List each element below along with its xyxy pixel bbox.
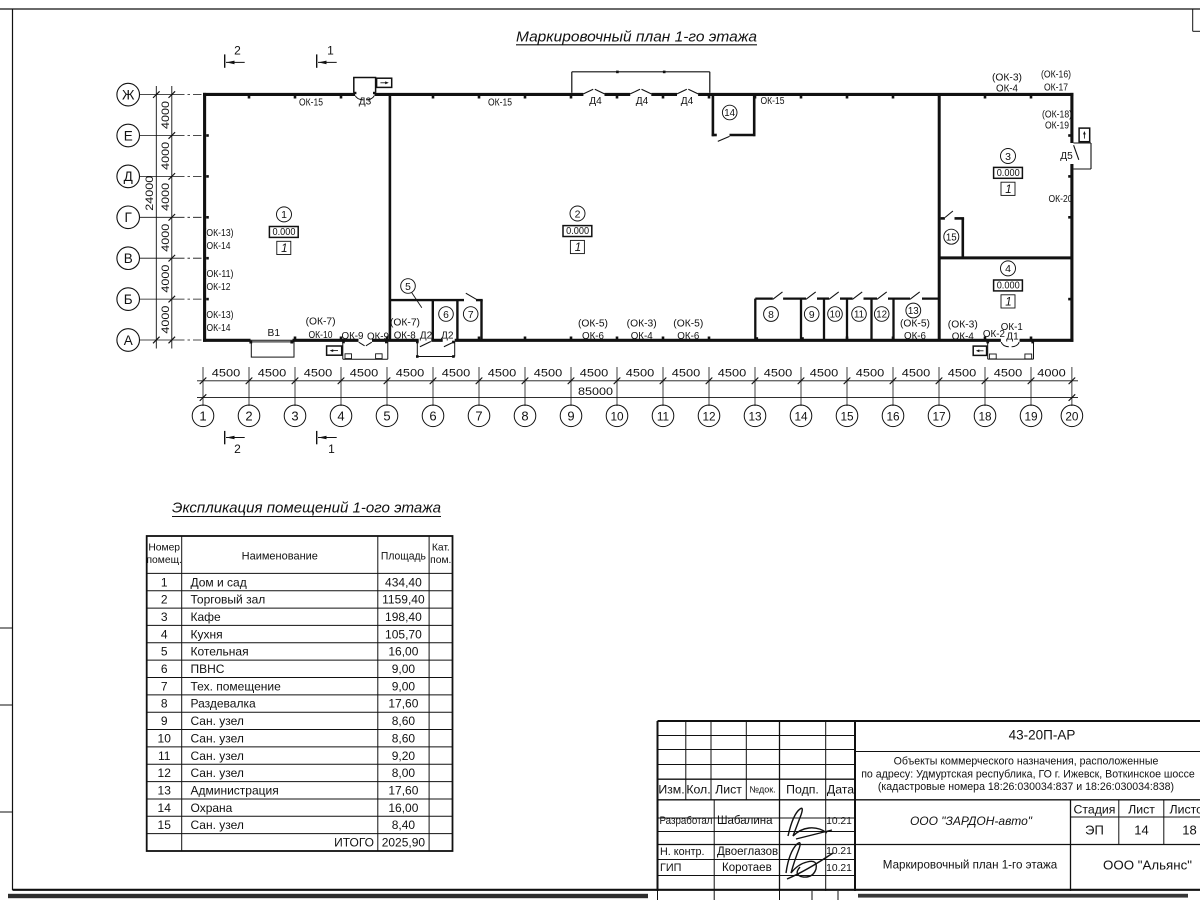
- svg-text:Листов: Листов: [1170, 802, 1200, 816]
- svg-text:3: 3: [161, 610, 168, 624]
- svg-text:4500: 4500: [856, 367, 885, 379]
- svg-text:ОК-6: ОК-6: [582, 331, 605, 342]
- svg-text:ОК-20: ОК-20: [1049, 194, 1073, 205]
- svg-text:11: 11: [657, 409, 669, 423]
- svg-text:4500: 4500: [258, 367, 287, 379]
- svg-text:(ОК-3): (ОК-3): [948, 320, 978, 331]
- svg-text:8,60: 8,60: [392, 714, 416, 728]
- svg-text:Подп.: Подп.: [786, 783, 819, 797]
- svg-text:9,00: 9,00: [392, 662, 416, 676]
- svg-text:ОК-14: ОК-14: [207, 323, 231, 334]
- svg-text:10: 10: [610, 409, 624, 423]
- svg-text:9: 9: [161, 714, 168, 728]
- svg-text:ОК-19: ОК-19: [1045, 121, 1069, 132]
- svg-text:14: 14: [794, 409, 808, 423]
- svg-text:(ОК-13): (ОК-13): [204, 310, 234, 321]
- svg-text:Сан. узел: Сан. узел: [191, 714, 244, 728]
- svg-text:Лист: Лист: [1128, 802, 1155, 816]
- svg-text:14: 14: [158, 801, 172, 815]
- svg-text:4000: 4000: [160, 101, 172, 129]
- svg-text:Д2: Д2: [420, 331, 433, 342]
- svg-text:8,00: 8,00: [392, 766, 416, 780]
- svg-text:(ОК-11): (ОК-11): [204, 269, 234, 280]
- svg-text:ПВНС: ПВНС: [191, 662, 225, 676]
- svg-text:ОК-8: ОК-8: [394, 331, 417, 342]
- svg-text:(ОК-5): (ОК-5): [578, 319, 608, 330]
- svg-text:15: 15: [946, 232, 957, 243]
- svg-text:(ОК-13): (ОК-13): [204, 228, 234, 239]
- svg-text:19: 19: [1024, 409, 1037, 423]
- svg-text:4000: 4000: [1037, 367, 1066, 379]
- svg-text:198,40: 198,40: [385, 610, 422, 624]
- svg-text:17,60: 17,60: [388, 784, 418, 798]
- svg-text:Раздевалка: Раздевалка: [191, 697, 256, 711]
- svg-text:ЭП: ЭП: [1085, 823, 1104, 838]
- svg-text:Наименование: Наименование: [242, 551, 318, 563]
- svg-text:2: 2: [161, 593, 168, 607]
- svg-text:Объекты коммерческого назначен: Объекты коммерческого назначения, распол…: [894, 756, 1159, 768]
- svg-text:4500: 4500: [304, 367, 333, 379]
- svg-text:ООО "ЗАРДОН-авто": ООО "ЗАРДОН-авто": [910, 814, 1033, 828]
- svg-text:(ОК-18): (ОК-18): [1042, 110, 1072, 121]
- svg-text:Торговый зал: Торговый зал: [191, 593, 266, 607]
- svg-text:12: 12: [158, 766, 172, 780]
- svg-text:13: 13: [748, 409, 762, 423]
- svg-text:Д4: Д4: [681, 96, 694, 107]
- svg-text:2025,90: 2025,90: [382, 836, 426, 850]
- svg-text:10.21: 10.21: [826, 863, 852, 874]
- svg-text:Номер: Номер: [148, 543, 180, 554]
- svg-text:Двоеглазов: Двоеглазов: [717, 846, 778, 858]
- svg-text:2: 2: [234, 44, 241, 58]
- svg-text:8,60: 8,60: [392, 731, 416, 745]
- svg-text:3: 3: [1005, 151, 1011, 163]
- svg-text:(ОК-3): (ОК-3): [627, 319, 657, 330]
- svg-text:4500: 4500: [580, 367, 609, 379]
- svg-text:(кадастровые номера 18:26:0300: (кадастровые номера 18:26:030034:837 и 1…: [878, 781, 1174, 793]
- svg-text:9,00: 9,00: [392, 679, 416, 693]
- svg-text:4: 4: [1005, 263, 1011, 275]
- svg-text:4000: 4000: [160, 265, 172, 293]
- svg-text:7: 7: [475, 408, 482, 423]
- svg-text:Кафе: Кафе: [191, 610, 222, 624]
- svg-text:Тех. помещение: Тех. помещение: [191, 679, 282, 693]
- svg-text:4500: 4500: [718, 367, 747, 379]
- svg-text:4500: 4500: [442, 367, 471, 379]
- svg-text:ОК-10: ОК-10: [309, 330, 333, 341]
- svg-text:Е: Е: [124, 128, 133, 143]
- svg-text:85000: 85000: [578, 386, 613, 398]
- svg-text:0.000: 0.000: [997, 281, 1021, 292]
- svg-text:18: 18: [1182, 823, 1196, 838]
- svg-text:4500: 4500: [948, 367, 977, 379]
- svg-text:(ОК-3): (ОК-3): [992, 73, 1022, 84]
- svg-text:0.000: 0.000: [997, 168, 1021, 179]
- svg-text:ОК-9: ОК-9: [367, 332, 389, 343]
- svg-text:10.21: 10.21: [826, 816, 852, 827]
- svg-text:434,40: 434,40: [385, 575, 422, 589]
- svg-text:1: 1: [281, 243, 287, 255]
- svg-text:12: 12: [702, 409, 715, 423]
- svg-text:4500: 4500: [764, 367, 793, 379]
- svg-text:ОК-14: ОК-14: [207, 241, 231, 252]
- svg-text:4500: 4500: [672, 367, 701, 379]
- svg-text:2: 2: [575, 208, 581, 220]
- svg-text:4500: 4500: [212, 367, 241, 379]
- svg-text:1: 1: [161, 575, 168, 589]
- svg-text:1: 1: [575, 242, 581, 254]
- svg-text:6: 6: [443, 310, 449, 321]
- svg-text:ОК-15: ОК-15: [299, 98, 323, 109]
- svg-text:2: 2: [234, 442, 241, 456]
- svg-text:Д5: Д5: [1060, 151, 1073, 162]
- svg-text:24000: 24000: [144, 176, 156, 211]
- svg-text:11: 11: [158, 749, 171, 763]
- svg-text:8,40: 8,40: [392, 818, 416, 832]
- svg-text:Д4: Д4: [636, 96, 649, 107]
- svg-text:Маркировочный план 1-го этажа: Маркировочный план 1-го этажа: [883, 859, 1058, 872]
- svg-text:4: 4: [161, 627, 168, 641]
- svg-text:5: 5: [161, 645, 168, 659]
- svg-text:ОК-4: ОК-4: [996, 84, 1019, 95]
- svg-text:по адресу: Удмуртская республи: по адресу: Удмуртская республика, ГО г. …: [861, 768, 1195, 780]
- svg-text:14: 14: [724, 108, 735, 119]
- svg-text:ИТОГО: ИТОГО: [334, 836, 374, 850]
- svg-text:Охрана: Охрана: [191, 801, 233, 815]
- svg-text:(ОК-7): (ОК-7): [306, 317, 336, 328]
- svg-text:1159,40: 1159,40: [382, 593, 425, 607]
- svg-text:7: 7: [161, 679, 168, 693]
- svg-text:11: 11: [854, 310, 864, 321]
- svg-text:Дата: Дата: [827, 783, 854, 797]
- svg-text:Д3: Д3: [359, 97, 372, 108]
- svg-text:Ж: Ж: [122, 87, 135, 102]
- svg-text:ОК-9: ОК-9: [342, 331, 364, 342]
- svg-text:2: 2: [245, 408, 252, 423]
- svg-text:(ОК-7): (ОК-7): [390, 318, 420, 329]
- svg-text:(ОК-5): (ОК-5): [673, 319, 703, 330]
- svg-text:7: 7: [468, 310, 474, 321]
- svg-text:9,20: 9,20: [392, 749, 416, 763]
- svg-text:4500: 4500: [902, 367, 931, 379]
- svg-text:Дом и сад: Дом и сад: [191, 575, 247, 589]
- svg-text:ОК-4: ОК-4: [631, 331, 654, 342]
- svg-text:ОК-6: ОК-6: [904, 331, 927, 342]
- svg-text:Д: Д: [124, 169, 133, 184]
- svg-text:16: 16: [886, 409, 900, 423]
- svg-text:4000: 4000: [160, 306, 172, 334]
- svg-text:1: 1: [328, 442, 335, 456]
- svg-text:9: 9: [809, 310, 815, 321]
- svg-text:6: 6: [161, 662, 168, 676]
- svg-text:Н. контр.: Н. контр.: [660, 846, 705, 858]
- svg-text:(ОК-5): (ОК-5): [900, 319, 930, 330]
- svg-text:Кол.: Кол.: [686, 783, 710, 797]
- svg-text:ГИП: ГИП: [660, 862, 681, 874]
- svg-text:0.000: 0.000: [273, 227, 297, 238]
- svg-text:Котельная: Котельная: [191, 645, 249, 659]
- svg-text:Кухня: Кухня: [191, 627, 223, 641]
- svg-text:15: 15: [158, 818, 172, 832]
- svg-text:18: 18: [978, 409, 992, 423]
- svg-text:№док.: №док.: [749, 785, 775, 795]
- svg-text:1: 1: [281, 209, 287, 221]
- svg-text:9: 9: [567, 408, 574, 423]
- svg-text:Сан. узел: Сан. узел: [191, 749, 244, 763]
- svg-text:А: А: [124, 333, 133, 348]
- svg-text:ОК-12: ОК-12: [207, 282, 231, 293]
- svg-text:Кат.: Кат.: [432, 543, 450, 554]
- svg-text:В: В: [124, 251, 133, 266]
- svg-text:43-20П-АР: 43-20П-АР: [1009, 728, 1076, 743]
- svg-text:Лист: Лист: [715, 783, 742, 797]
- svg-text:ОК-15: ОК-15: [761, 96, 785, 107]
- svg-text:Разработал: Разработал: [660, 815, 713, 827]
- svg-text:13: 13: [158, 784, 172, 798]
- svg-text:4500: 4500: [994, 367, 1023, 379]
- svg-text:Б: Б: [124, 292, 133, 307]
- svg-text:4500: 4500: [396, 367, 425, 379]
- svg-text:1: 1: [1005, 184, 1011, 196]
- svg-text:10: 10: [830, 310, 841, 321]
- svg-text:4000: 4000: [160, 224, 172, 252]
- svg-text:Д4: Д4: [589, 96, 602, 107]
- svg-text:17: 17: [932, 409, 945, 423]
- svg-text:8: 8: [521, 408, 528, 423]
- svg-text:Д2: Д2: [441, 331, 454, 342]
- svg-text:4500: 4500: [350, 367, 379, 379]
- svg-text:1: 1: [1005, 296, 1011, 308]
- svg-text:ОК-15: ОК-15: [488, 98, 512, 109]
- svg-text:3: 3: [291, 408, 298, 423]
- svg-text:(ОК-16): (ОК-16): [1041, 70, 1071, 81]
- svg-text:Площадь: Площадь: [381, 551, 426, 563]
- svg-text:1: 1: [199, 408, 206, 423]
- svg-text:Коротаев: Коротаев: [722, 862, 772, 874]
- svg-text:помещ.: помещ.: [146, 555, 181, 566]
- svg-text:4500: 4500: [810, 367, 839, 379]
- svg-text:4500: 4500: [626, 367, 655, 379]
- svg-text:15: 15: [840, 409, 854, 423]
- svg-text:5: 5: [405, 282, 411, 293]
- svg-text:4500: 4500: [488, 367, 517, 379]
- svg-text:105,70: 105,70: [385, 627, 422, 641]
- svg-text:17,60: 17,60: [388, 697, 418, 711]
- svg-text:1: 1: [327, 44, 334, 58]
- svg-text:ОК-4: ОК-4: [952, 332, 975, 343]
- svg-text:4000: 4000: [160, 142, 172, 170]
- svg-text:6: 6: [429, 408, 436, 423]
- svg-text:20: 20: [1065, 409, 1079, 423]
- svg-text:ОК-6: ОК-6: [677, 331, 700, 342]
- svg-text:8: 8: [161, 697, 168, 711]
- svg-text:Сан. узел: Сан. узел: [191, 818, 244, 832]
- svg-text:Маркировочный план 1-го этажа: Маркировочный план 1-го этажа: [516, 30, 757, 46]
- svg-text:14: 14: [1134, 823, 1148, 838]
- svg-text:Г: Г: [125, 210, 133, 225]
- svg-text:16,00: 16,00: [388, 645, 418, 659]
- svg-text:Сан. узел: Сан. узел: [191, 731, 244, 745]
- svg-text:ОК-17: ОК-17: [1044, 83, 1068, 94]
- svg-text:Изм.: Изм.: [658, 783, 684, 797]
- svg-text:В1: В1: [268, 328, 281, 339]
- svg-text:5: 5: [383, 408, 390, 423]
- svg-text:12: 12: [876, 310, 887, 321]
- svg-text:4500: 4500: [534, 367, 563, 379]
- svg-text:0.000: 0.000: [566, 226, 590, 237]
- svg-text:Администрация: Администрация: [191, 784, 279, 798]
- svg-text:16,00: 16,00: [388, 801, 418, 815]
- svg-text:Стадия: Стадия: [1074, 802, 1116, 816]
- svg-text:8: 8: [768, 310, 774, 321]
- svg-text:4000: 4000: [160, 183, 172, 211]
- svg-text:Сан. узел: Сан. узел: [191, 766, 244, 780]
- svg-text:13: 13: [908, 306, 919, 317]
- svg-text:пом.: пом.: [430, 555, 451, 566]
- svg-text:Д1: Д1: [1006, 332, 1019, 343]
- svg-text:10: 10: [158, 731, 172, 745]
- svg-text:Шабалина: Шабалина: [717, 815, 773, 827]
- svg-text:4: 4: [337, 408, 344, 423]
- svg-text:ООО "Альянс": ООО "Альянс": [1103, 858, 1192, 873]
- svg-text:Экспликация помещений 1-ого эт: Экспликация помещений 1-ого этажа: [172, 501, 441, 517]
